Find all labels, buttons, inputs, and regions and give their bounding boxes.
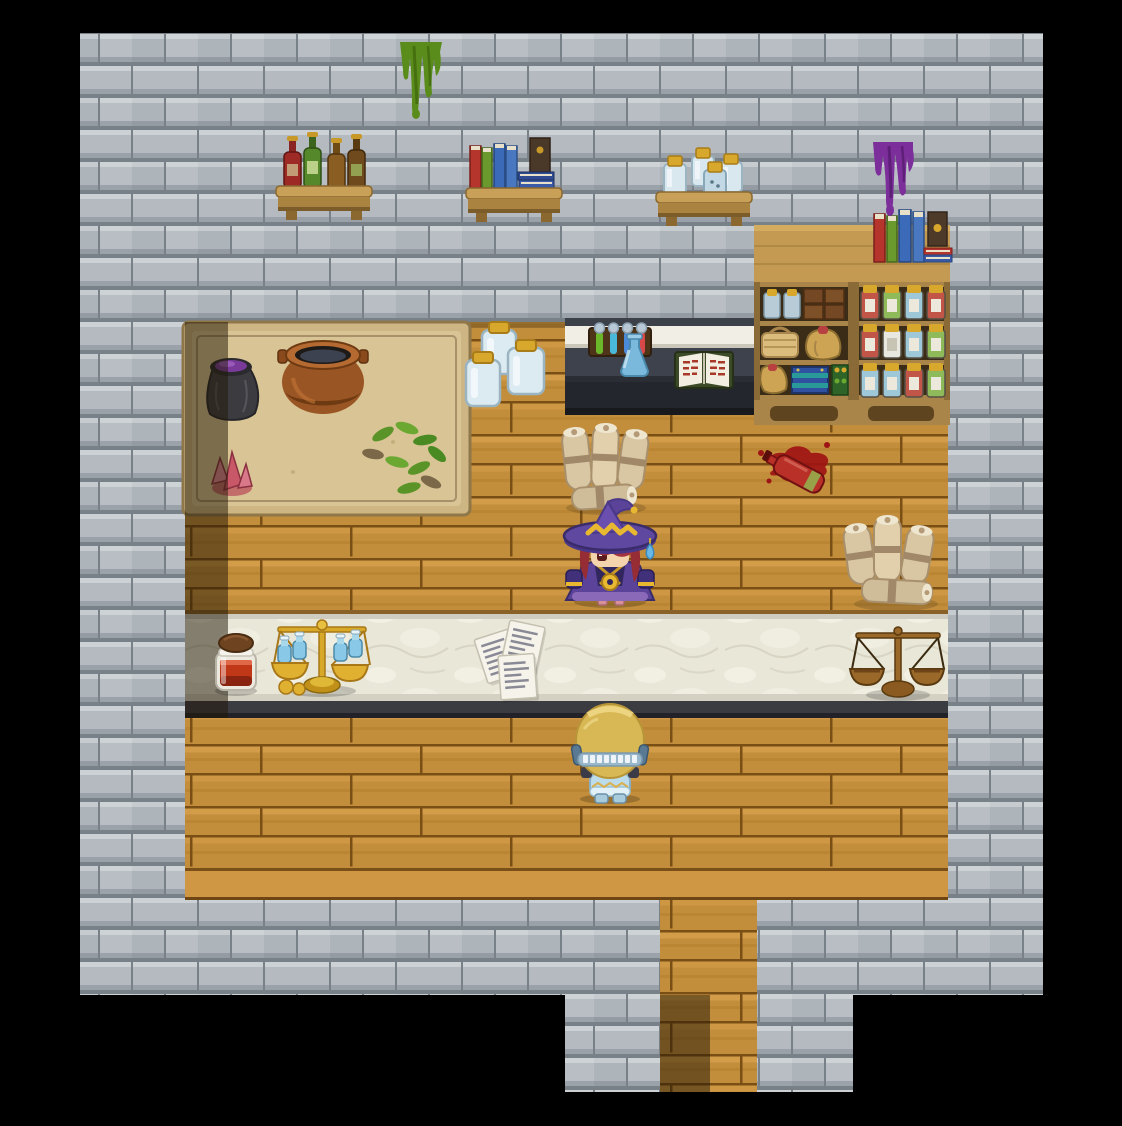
glass-jar — [466, 352, 500, 406]
floor-edge-board — [185, 868, 948, 900]
stone-wall-flank-left — [565, 995, 660, 1092]
books-on-cabinet[interactable] — [874, 210, 952, 262]
shelf-jar — [664, 148, 742, 198]
stone-wall-flank-right — [757, 995, 853, 1092]
storage-cabinet-left[interactable] — [754, 225, 854, 425]
open-recipe-book[interactable] — [675, 352, 733, 388]
game-viewport — [0, 0, 1122, 1126]
red-potion-jar[interactable] — [215, 634, 257, 696]
stone-wall-bottom — [80, 900, 1043, 995]
corridor-shadow — [660, 995, 710, 1092]
glass-jar — [508, 340, 544, 394]
alchemy-station[interactable] — [565, 318, 757, 415]
stone-wall-left — [80, 322, 185, 995]
stone-wall-right — [948, 322, 1043, 995]
exit-corridor[interactable] — [660, 900, 757, 1092]
wall-shelf-jars[interactable] — [656, 148, 752, 226]
wall-shelf-books[interactable] — [466, 138, 562, 222]
test-tube-rack[interactable] — [589, 323, 651, 356]
